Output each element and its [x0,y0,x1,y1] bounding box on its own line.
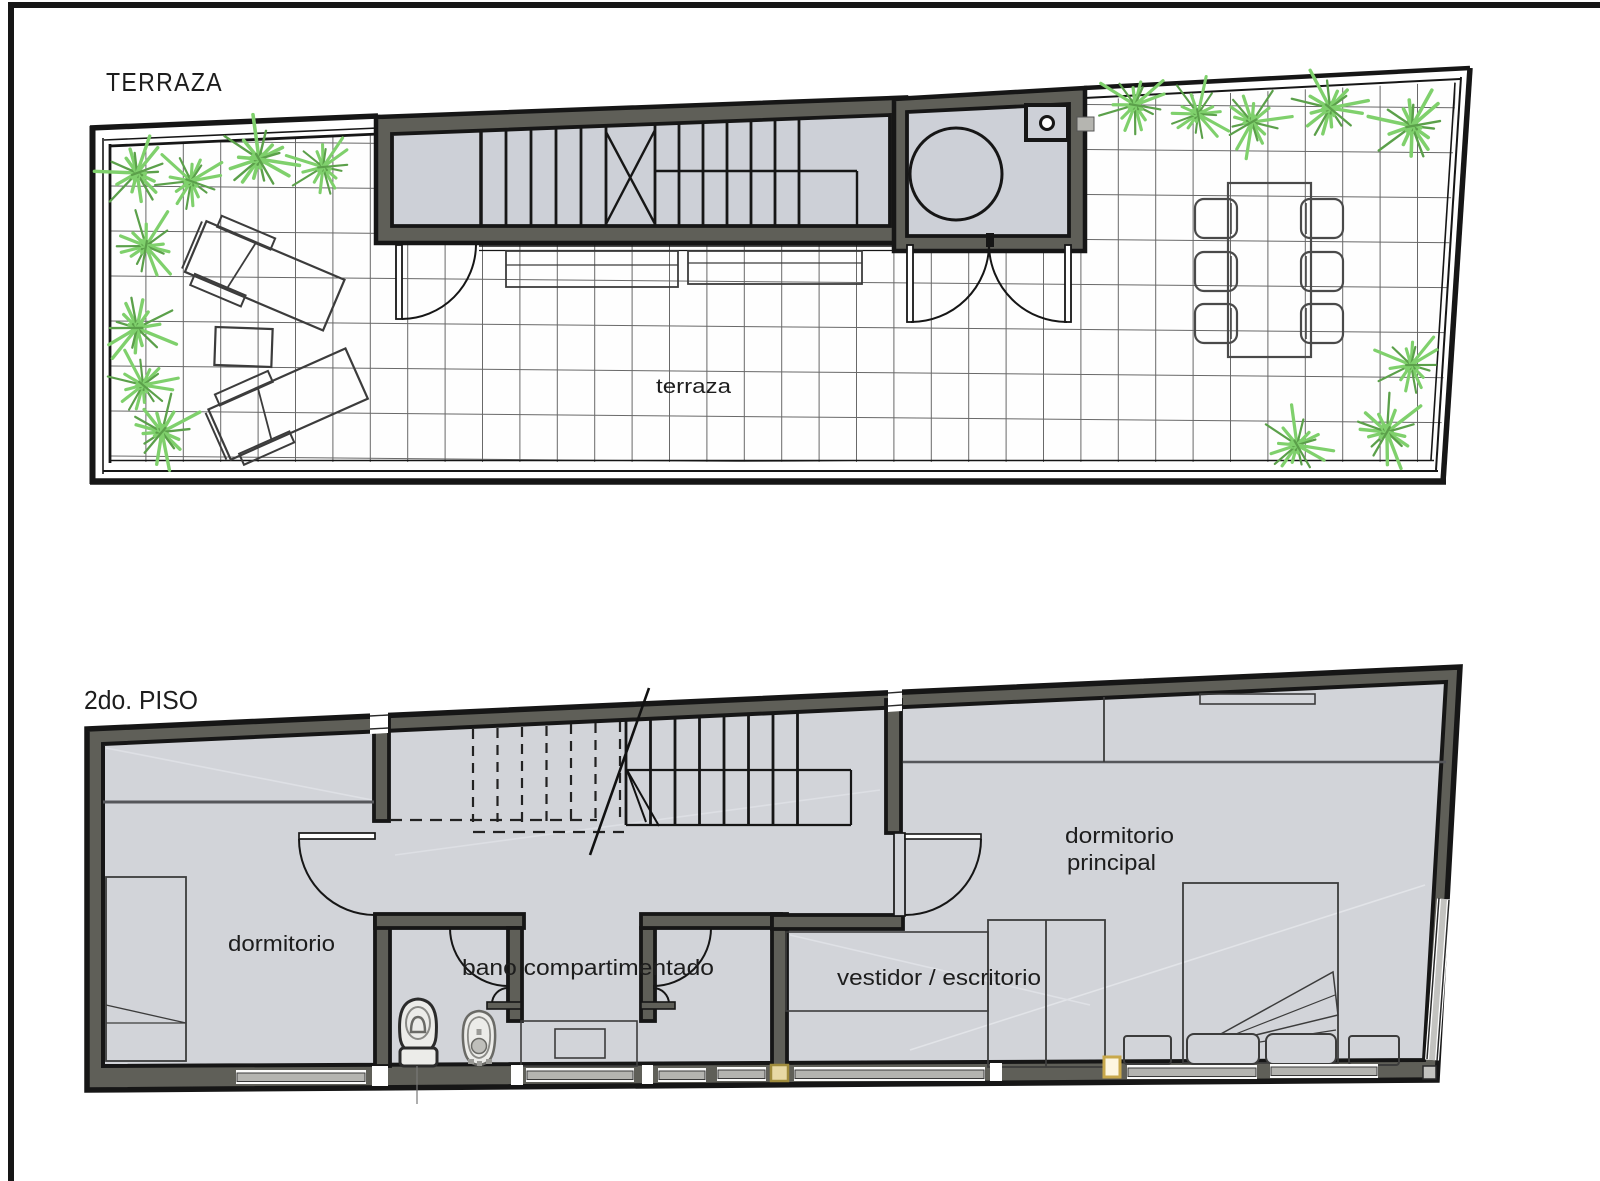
svg-text:TERRAZA: TERRAZA [106,67,223,97]
svg-text:vestidor / escritorio: vestidor / escritorio [837,965,1041,990]
svg-text:terraza: terraza [656,375,732,398]
svg-text:principal: principal [1067,850,1156,875]
svg-text:dormitorio: dormitorio [1065,823,1174,848]
svg-text:bano compartimentado: bano compartimentado [462,955,714,980]
svg-text:2do. PISO: 2do. PISO [84,687,198,715]
svg-text:dormitorio: dormitorio [228,931,335,956]
